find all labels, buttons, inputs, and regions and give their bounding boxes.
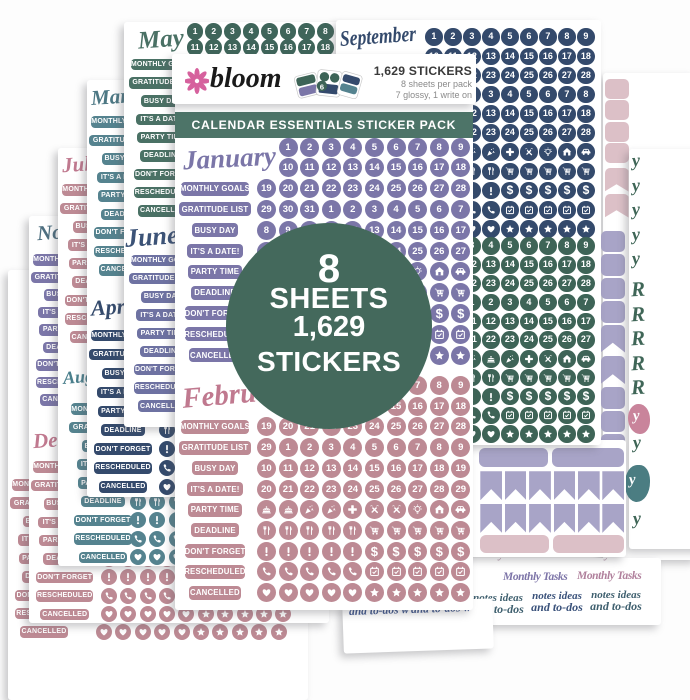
svg-text:6: 6 — [320, 82, 325, 91]
